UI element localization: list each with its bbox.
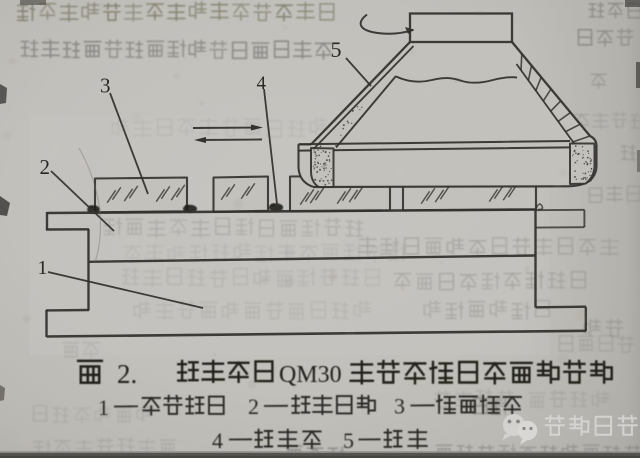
svg-text:5: 5	[331, 37, 342, 62]
svg-text:2: 2	[248, 394, 259, 419]
svg-text:5: 5	[343, 428, 354, 453]
svg-text:4: 4	[257, 73, 267, 94]
svg-text:3: 3	[100, 74, 111, 98]
svg-text:1: 1	[38, 257, 48, 279]
svg-text:4: 4	[212, 428, 223, 453]
svg-text:3: 3	[394, 394, 405, 419]
svg-text:2: 2	[40, 155, 51, 179]
svg-text:QM30: QM30	[279, 362, 342, 388]
svg-text:2.: 2.	[117, 359, 137, 389]
svg-text:1: 1	[98, 395, 109, 420]
